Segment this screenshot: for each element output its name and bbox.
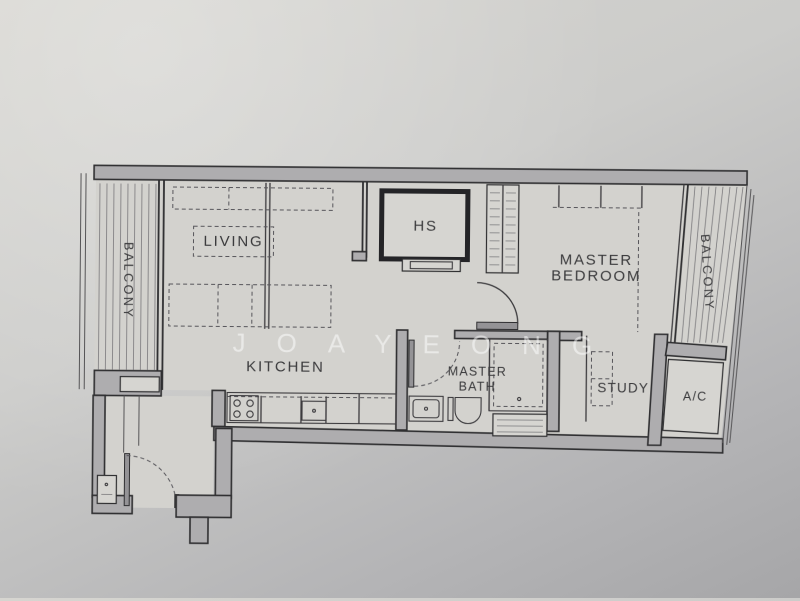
floor-plan: BALCONY LIVING HS MASTER BEDROOM BALCONY… (0, 0, 800, 601)
label-master-bath: MASTER BATH (448, 364, 508, 395)
label-master-bedroom-line2: BEDROOM (551, 268, 641, 285)
label-master-bath-line1: MASTER (448, 364, 507, 380)
label-master-bedroom: MASTER BEDROOM (551, 252, 641, 285)
label-study: STUDY (597, 380, 649, 395)
wardrobe (486, 185, 519, 273)
label-master-bath-line2: BATH (448, 379, 507, 395)
label-balcony-left: BALCONY (121, 242, 136, 319)
label-kitchen: KITCHEN (246, 358, 325, 376)
photo-of-floor-plan: { "meta": { "subject": "apartment floor … (0, 0, 800, 598)
agent-watermark: JOAYEONG (232, 328, 623, 362)
label-living: LIVING (203, 233, 263, 251)
label-hs: HS (413, 218, 438, 235)
label-ac: A/C (683, 389, 708, 403)
